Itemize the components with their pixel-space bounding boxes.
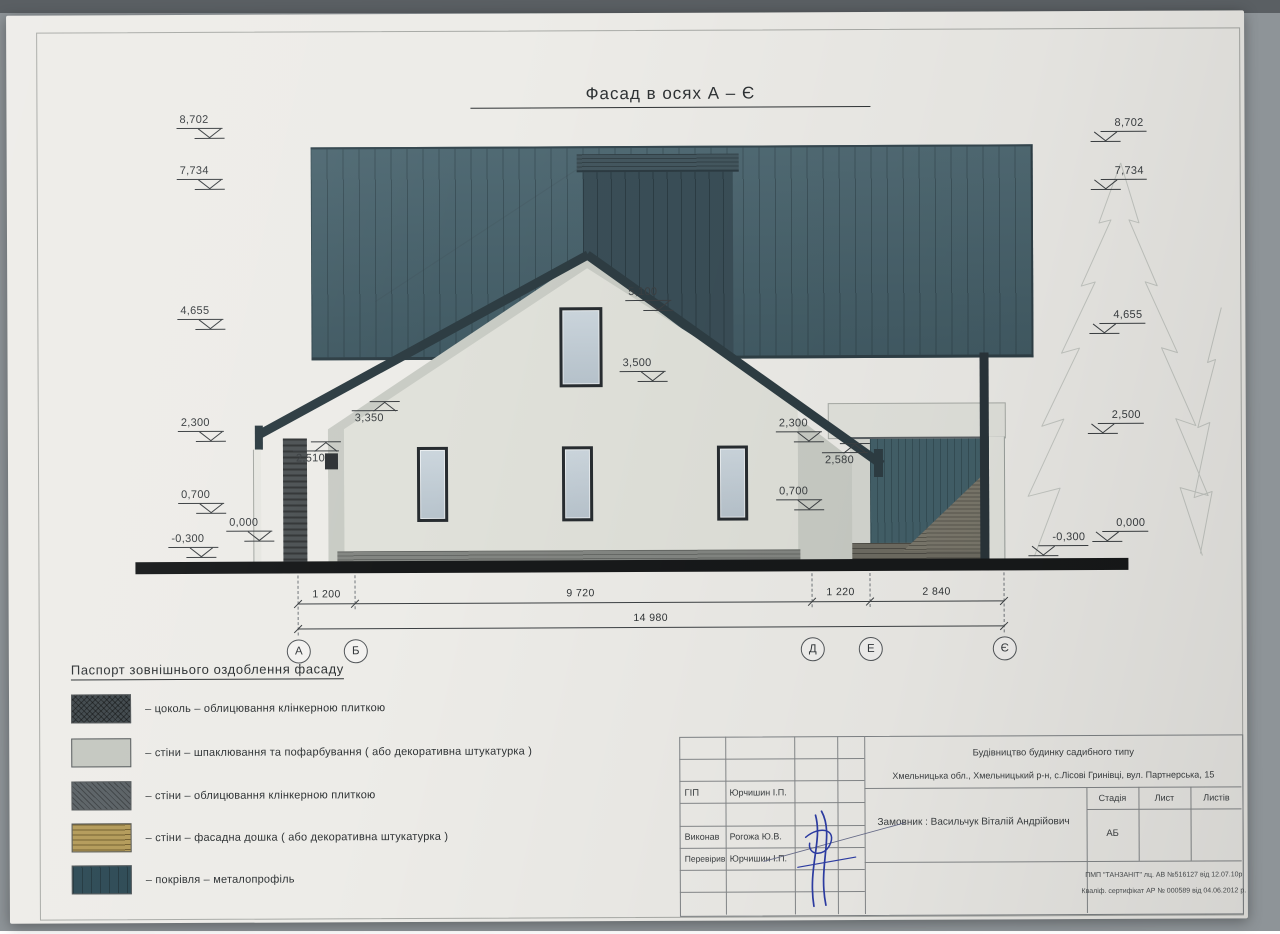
legend-item: – стіни – шпаклювання та пофарбування ( … [71, 736, 532, 767]
annex-corner-wall [989, 436, 1006, 563]
dim-label: 1 220 [826, 586, 854, 598]
role-pereviryv: Перевірив [685, 854, 726, 864]
dim-label: 2 840 [922, 586, 950, 598]
project-title: Будівництво будинку садибного типу [973, 747, 1134, 759]
legend-item: – стіни – фасадна дошка ( або декоративн… [72, 822, 449, 853]
project-address: Хмельницька обл., Хмельницький р-н, с.Лі… [892, 769, 1214, 780]
dimension-marker: 2,580 [822, 441, 874, 468]
role-pereviryv-name: Юрчишин І.П. [730, 853, 787, 863]
dim-label-total: 14 980 [633, 612, 668, 624]
elevation-marker: 4,655 [177, 306, 229, 332]
role-vykonav: Виконав [685, 832, 720, 842]
elevation-marker: 8,702 [176, 115, 228, 141]
axis-bubble-d: Д [801, 637, 825, 661]
elevation-marker: 0,000 [226, 518, 278, 544]
drawing-title: Фасад в осях А – Є [470, 83, 870, 109]
elevation-marker: 4,655 [1099, 310, 1145, 336]
chimney-cap [577, 154, 739, 173]
swatch-wall-plaster [71, 738, 131, 767]
window-lower-2 [562, 446, 593, 521]
fascia-left [255, 426, 263, 450]
photo-background: Фасад в осях А – Є [0, 0, 1280, 931]
dim-label: 9 720 [566, 587, 594, 599]
stage-header: Стадія [1099, 793, 1127, 803]
elevation-marker: 2,300 [178, 418, 230, 444]
legend-title: Паспорт зовнішнього оздоблення фасаду [71, 661, 344, 680]
elevation-marker: -0,300 [1038, 532, 1088, 558]
axis-bubble-e: Е [859, 637, 883, 661]
elevation-marker: 8,702 [1100, 118, 1146, 144]
sheet-header: Лист [1155, 793, 1175, 803]
swatch-wall-clinker [71, 781, 131, 810]
elevation-marker: 7,734 [1101, 166, 1147, 192]
dimension-marker: 2,510 [293, 439, 345, 466]
dimension-marker: 3,350 [352, 399, 404, 426]
axis-bubble-b: Б [344, 639, 368, 663]
window-lower-1 [417, 447, 448, 522]
dimension-marker: 5,100 [625, 287, 677, 313]
sheets-header: Листів [1203, 792, 1229, 802]
dimension-marker: 2,300 [776, 418, 828, 444]
elevation-marker: 0,000 [1102, 518, 1148, 544]
dimension-marker: 3,500 [620, 358, 672, 384]
dim-label: 1 200 [312, 588, 340, 600]
license-line-1: ПМП "ТАНЗАНІТ" лц. АВ №516127 від 12.07.… [1085, 871, 1242, 879]
porch-post [253, 450, 261, 564]
window-lower-3 [717, 446, 748, 521]
license-line-2: Кваліф. сертифікат АР № 000589 від 04.06… [1081, 887, 1246, 895]
client-name: Замовник : Васильчук Віталій Андрійович [877, 816, 1069, 828]
legend-item: – цоколь – облицювання клінкерною плитко… [71, 693, 385, 723]
stage-value: АБ [1106, 828, 1119, 839]
role-gip-name: Юрчишин І.П. [729, 787, 786, 797]
swatch-roof-metal [72, 865, 132, 894]
dimension-marker: 0,700 [776, 486, 828, 512]
window-gable [559, 307, 602, 387]
role-vykonav-name: Рогожа Ю.В. [730, 831, 782, 841]
axis-bubble-ye: Є [993, 636, 1017, 660]
role-gip: ГІП [684, 788, 699, 799]
legend-item: – стіни – облицювання клінкерною плиткою [71, 780, 375, 810]
elevation-marker: 0,700 [178, 490, 230, 516]
sheet-wrapper: Фасад в осях А – Є [0, 0, 1280, 934]
elevation-marker: 7,734 [177, 166, 229, 192]
swatch-plinth-clinker [71, 694, 131, 723]
elevation-marker: 2,500 [1098, 410, 1144, 436]
elevation-marker: -0,300 [168, 534, 220, 560]
fascia-right [874, 449, 883, 477]
axis-bubble-a: А [287, 639, 311, 663]
swatch-wall-board [72, 823, 132, 852]
legend-item: – покрівля – металопрофіль [72, 865, 295, 895]
terrace-post [980, 352, 990, 563]
